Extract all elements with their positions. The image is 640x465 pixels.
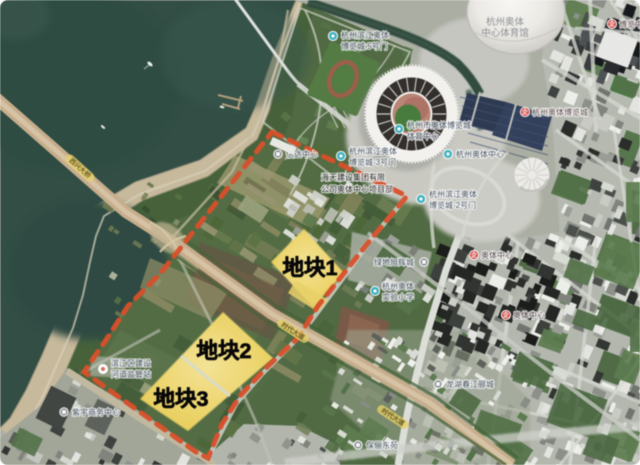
svg-text:企: 企: [502, 311, 510, 319]
svg-text:地块2: 地块2: [197, 339, 252, 363]
svg-text:博览城:5号门: 博览城:5号门: [341, 41, 388, 51]
svg-text:博览中心: 博览中心: [619, 19, 640, 29]
svg-text:实验小学: 实验小学: [382, 292, 414, 302]
svg-text:海天建设集团有限: 海天建设集团有限: [321, 172, 385, 182]
svg-text:体育中心: 体育中心: [407, 131, 439, 141]
svg-text:龙湖春江郦城: 龙湖春江郦城: [446, 379, 494, 389]
svg-text:地块1: 地块1: [283, 256, 338, 280]
svg-text:绿地旭辉城: 绿地旭辉城: [374, 257, 414, 267]
svg-text:公司奥体中心项目部: 公司奥体中心项目部: [321, 184, 393, 194]
svg-text:企: 企: [608, 20, 616, 28]
svg-text:杭州奥体博览城: 杭州奥体博览城: [532, 107, 588, 117]
svg-text:中心体育馆: 中心体育馆: [481, 27, 529, 39]
svg-text:企: 企: [470, 251, 478, 259]
svg-text:博览城-3号门: 博览城-3号门: [349, 157, 396, 167]
svg-text:博览城-2号门: 博览城-2号门: [429, 200, 476, 210]
svg-text:杭州滨江奥体: 杭州滨江奥体: [349, 146, 397, 156]
svg-text:杭州市奥体博览城: 杭州市奥体博览城: [407, 120, 471, 130]
svg-text:杭州奥体: 杭州奥体: [382, 281, 414, 291]
svg-text:河道监管站: 河道监管站: [111, 369, 151, 379]
svg-text:紫宇商务中心: 紫宇商务中心: [72, 407, 120, 417]
svg-text:奥体中心: 奥体中心: [481, 250, 513, 260]
svg-text:杭州滨江奥体: 杭州滨江奥体: [341, 30, 389, 40]
svg-text:保俪东苑: 保俪东苑: [366, 440, 398, 450]
svg-text:滨江区建设: 滨江区建设: [111, 358, 151, 368]
svg-text:杭州奥体: 杭州奥体: [486, 16, 525, 28]
svg-text:奥体中心: 奥体中心: [513, 310, 545, 320]
svg-text:杭州奥体中心: 杭州奥体中心: [456, 149, 504, 159]
svg-text:地块3: 地块3: [154, 387, 209, 411]
svg-text:杭州滨江奥体: 杭州滨江奥体: [429, 189, 477, 199]
svg-text:企: 企: [521, 108, 529, 116]
